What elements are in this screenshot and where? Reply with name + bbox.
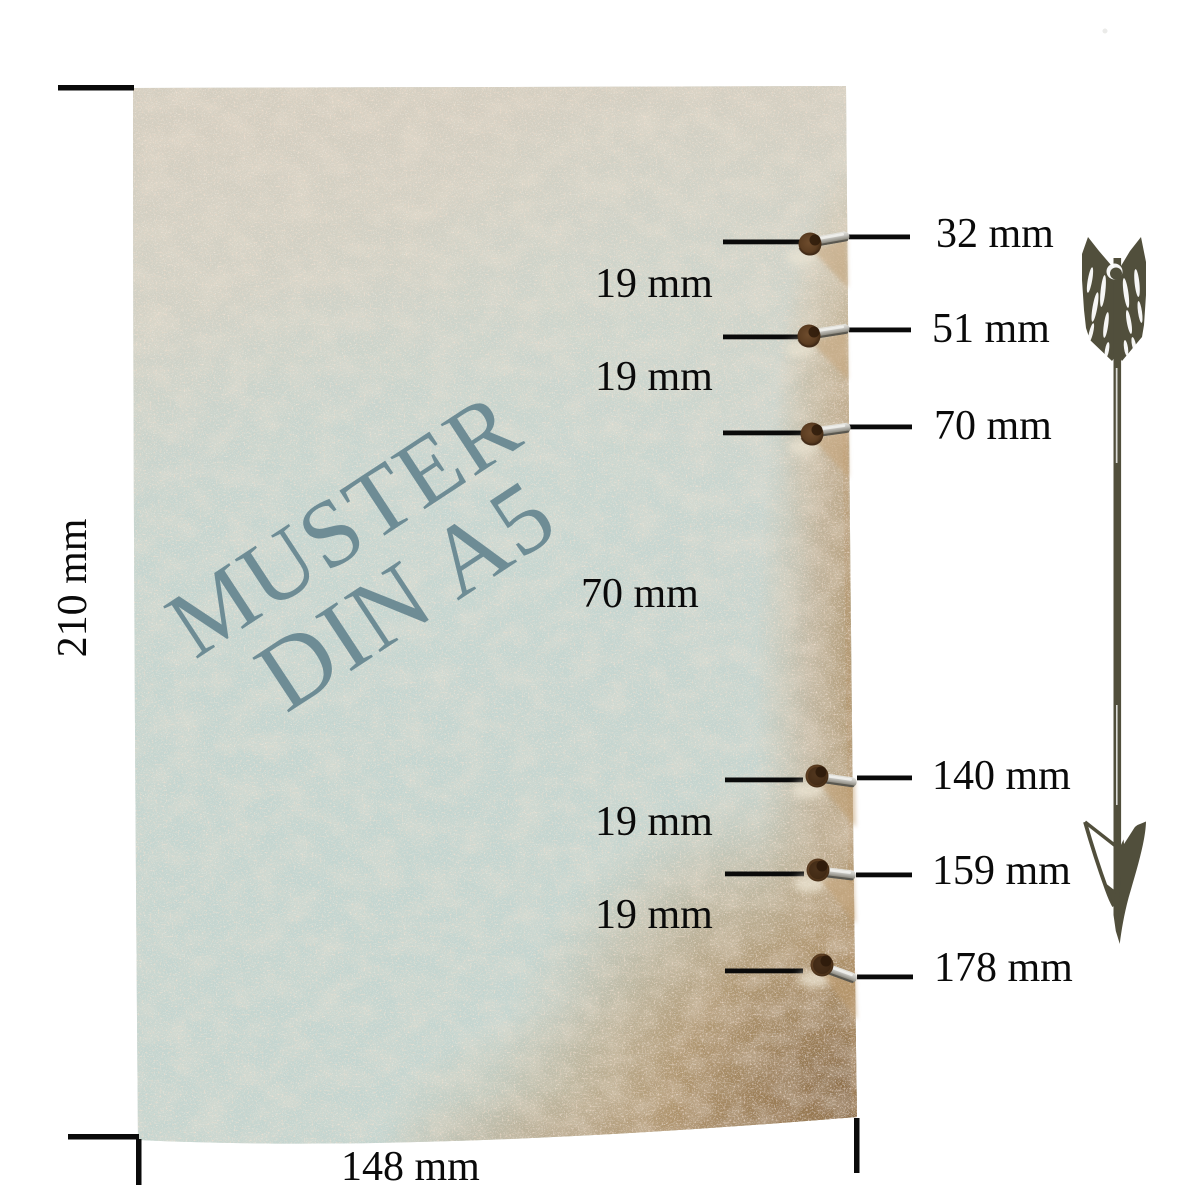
svg-text:19 mm: 19 mm	[595, 892, 713, 938]
svg-text:148 mm: 148 mm	[341, 1144, 480, 1190]
svg-text:159 mm: 159 mm	[932, 848, 1071, 894]
svg-text:19 mm: 19 mm	[595, 799, 713, 845]
svg-text:70 mm: 70 mm	[934, 403, 1052, 449]
svg-text:140 mm: 140 mm	[932, 753, 1071, 799]
svg-text:19 mm: 19 mm	[595, 354, 713, 400]
svg-text:70 mm: 70 mm	[581, 571, 699, 617]
svg-text:19 mm: 19 mm	[595, 261, 713, 307]
svg-text:210 mm: 210 mm	[50, 518, 96, 657]
svg-text:51 mm: 51 mm	[932, 306, 1050, 352]
svg-text:32 mm: 32 mm	[936, 211, 1054, 257]
svg-text:178 mm: 178 mm	[934, 945, 1073, 991]
